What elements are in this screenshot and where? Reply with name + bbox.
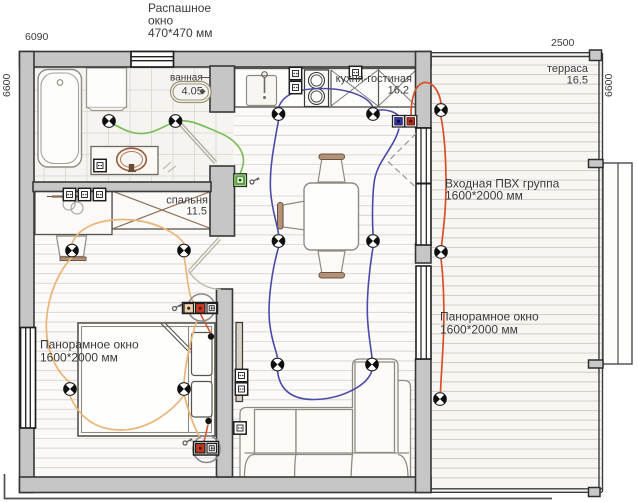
svg-text:1600*2000 мм: 1600*2000 мм — [445, 189, 523, 203]
svg-text:16.5: 16.5 — [567, 75, 588, 87]
svg-text:2500: 2500 — [551, 37, 575, 49]
svg-text:1600*2000 мм: 1600*2000 мм — [440, 323, 518, 337]
svg-text:6090: 6090 — [25, 31, 49, 43]
svg-text:6600: 6600 — [603, 73, 615, 97]
svg-text:Панорамное окно: Панорамное окно — [440, 310, 539, 324]
svg-text:Панорамное окно: Панорамное окно — [40, 338, 139, 352]
svg-text:16.2: 16.2 — [388, 85, 409, 97]
svg-text:1600*2000 мм: 1600*2000 мм — [40, 351, 118, 365]
svg-text:470*470 мм: 470*470 мм — [148, 26, 213, 40]
svg-text:11.5: 11.5 — [186, 206, 207, 218]
svg-text:кухня-гостиная: кухня-гостиная — [336, 73, 412, 85]
svg-text:6600: 6600 — [1, 73, 13, 97]
svg-text:терраса: терраса — [547, 63, 589, 75]
